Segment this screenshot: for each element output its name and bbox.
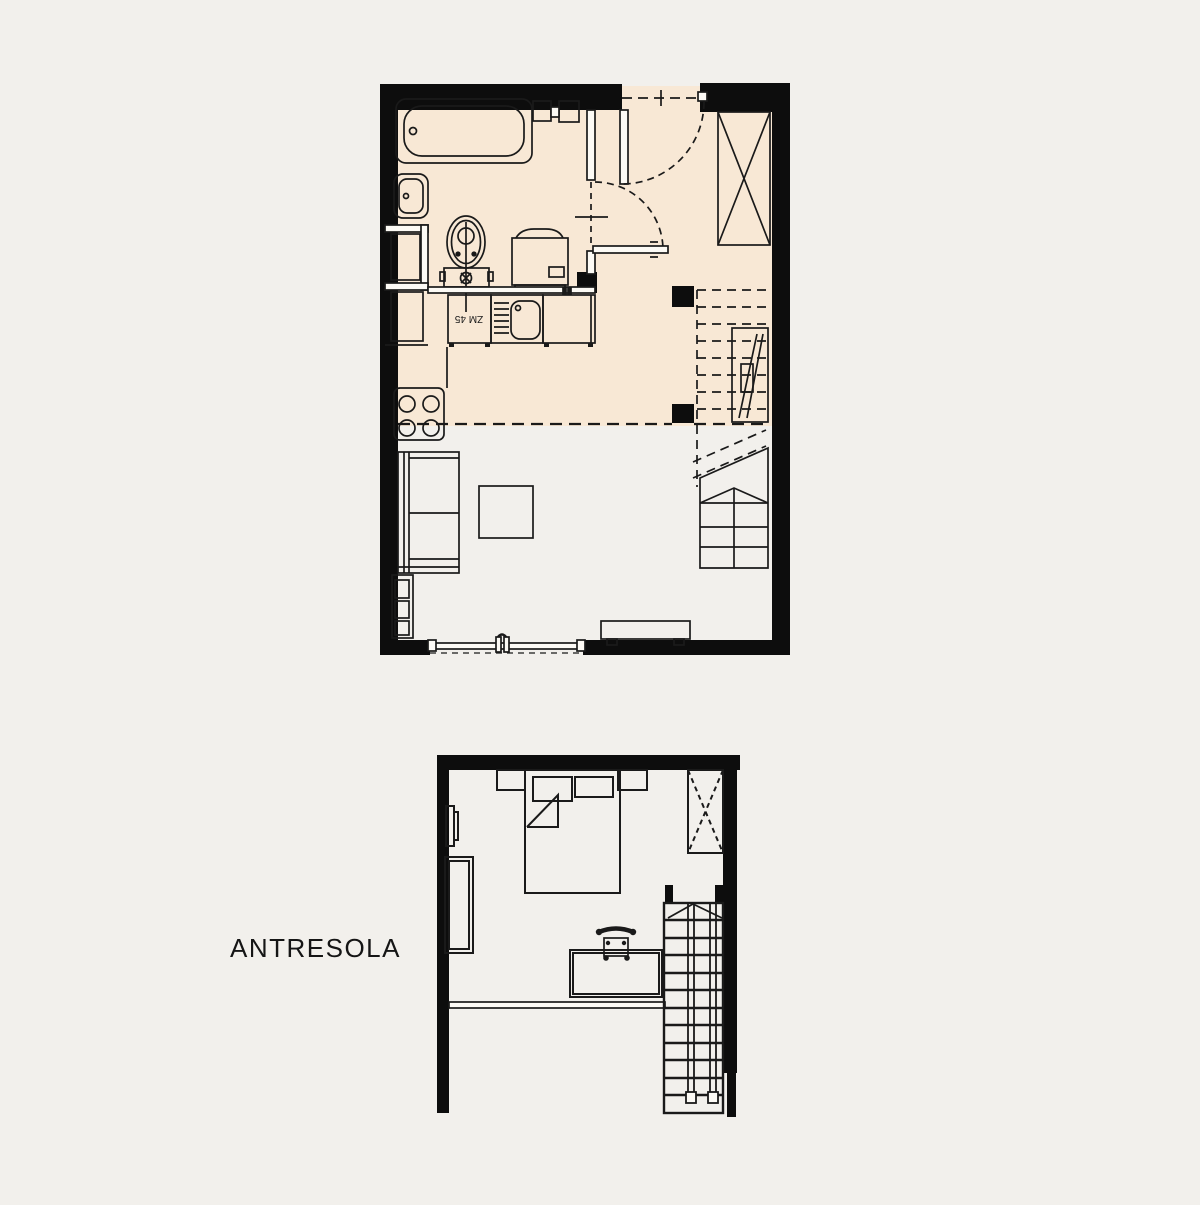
floor-highlight-zone [397, 106, 772, 426]
mezzanine-label: ANTRESOLA [230, 933, 401, 963]
dresser [445, 857, 473, 953]
sofa [398, 452, 459, 573]
stair-post [715, 885, 723, 903]
folded-blanket [527, 795, 558, 827]
floorplan-stage: ZM 45 [0, 0, 1200, 1200]
under-stair-shelving [700, 448, 768, 568]
mezzanine-railing [449, 1002, 665, 1008]
balcony-window [428, 635, 585, 654]
chair [596, 929, 636, 961]
floorplan-canvas: ZM 45 [0, 0, 1200, 1200]
dishwasher-label: ZM 45 [454, 313, 483, 324]
door-leaf [593, 246, 668, 253]
side-shelf [392, 575, 413, 638]
main-floor-plan: ZM 45 [380, 83, 790, 655]
window-handle [496, 637, 501, 652]
stair-post [665, 885, 673, 903]
nightstand-left [497, 770, 525, 790]
wall-pier [672, 286, 694, 307]
nightstand-right [618, 770, 647, 790]
door-hinge [698, 92, 707, 101]
wall-pier [672, 404, 694, 423]
pillow-right [575, 777, 613, 797]
wardrobe-crossed [688, 770, 723, 853]
pillow-left [533, 777, 572, 801]
mezzanine-plan: ANTRESOLA [230, 755, 740, 1117]
double-bed [525, 770, 620, 893]
coffee-table [479, 486, 533, 538]
window-handle [504, 637, 509, 652]
desk [570, 950, 662, 997]
stairs-down [664, 885, 723, 1113]
